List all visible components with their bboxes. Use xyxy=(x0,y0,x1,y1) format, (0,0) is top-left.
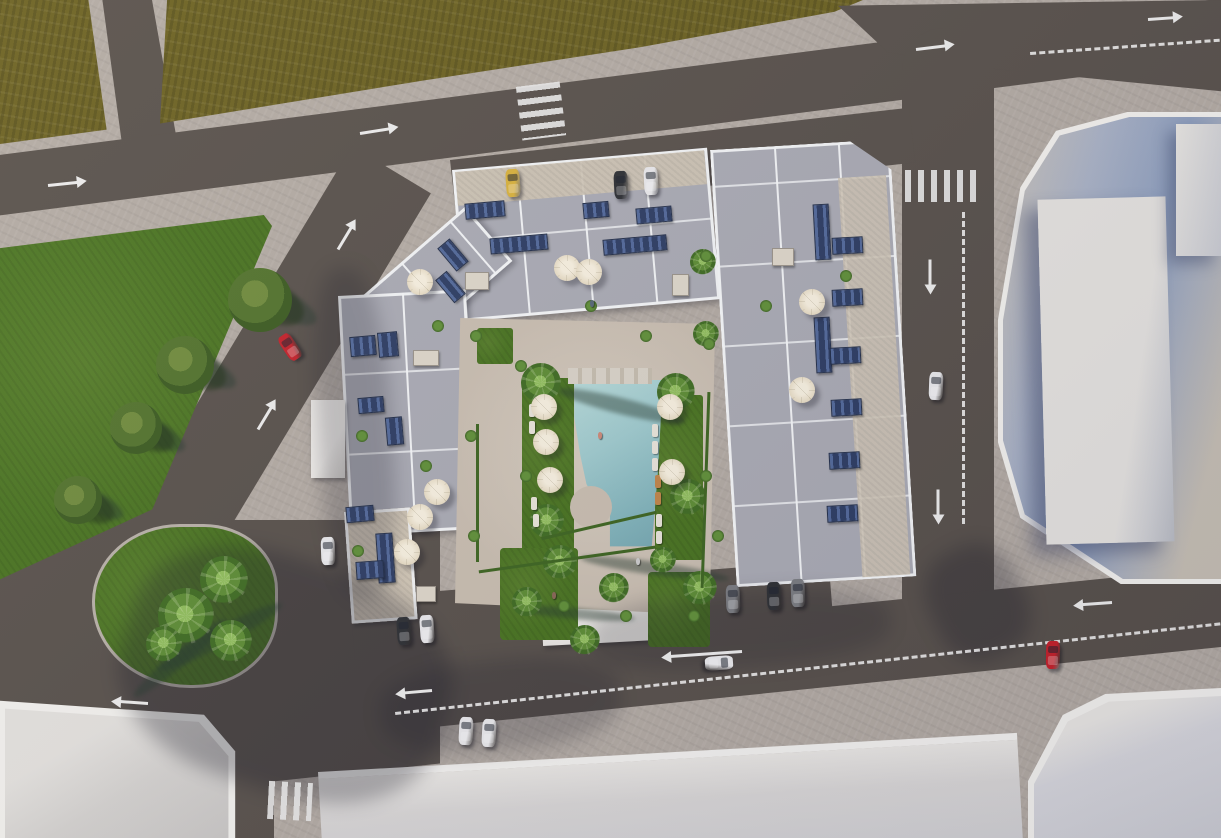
pool-lounger xyxy=(655,492,661,505)
solar-panel-array xyxy=(635,205,672,224)
car-windshield xyxy=(484,724,494,732)
shrub-planter xyxy=(465,430,477,442)
pool-lounger xyxy=(652,441,658,454)
person-figure xyxy=(552,592,556,599)
crosswalk-zebra xyxy=(516,82,566,141)
terrace-table xyxy=(672,274,689,296)
road-direction-arrow xyxy=(916,44,946,51)
car-dark xyxy=(767,582,782,610)
car-white xyxy=(481,719,496,748)
person-figure xyxy=(636,558,640,565)
car-white xyxy=(458,717,473,746)
car-roof-highlight xyxy=(728,600,738,609)
shrub-planter xyxy=(620,610,632,622)
shrub-planter xyxy=(432,320,444,332)
car-roof-highlight xyxy=(323,552,333,561)
pool-lounger xyxy=(529,421,535,434)
shrub-planter xyxy=(703,338,715,350)
solar-panel-array xyxy=(582,201,609,219)
solar-panel-array xyxy=(813,204,832,261)
solar-panel-array xyxy=(827,504,859,523)
road-direction-arrow xyxy=(1082,601,1112,606)
shrub-planter xyxy=(700,250,712,262)
car-white xyxy=(705,655,734,671)
road-direction-arrow xyxy=(360,127,390,135)
park-tree xyxy=(110,402,162,454)
shrub-planter xyxy=(640,330,652,342)
parasol-umbrella xyxy=(533,429,559,455)
parasol-umbrella xyxy=(407,269,433,295)
parasol-umbrella xyxy=(394,539,420,565)
solar-panel-array xyxy=(489,234,548,255)
pool-lounger xyxy=(656,531,662,544)
car-windshield xyxy=(931,377,941,384)
road-direction-arrow xyxy=(337,226,353,250)
car-windshield xyxy=(769,587,779,594)
shrub-planter xyxy=(420,460,432,472)
car-windshield xyxy=(323,542,333,549)
car-roof-highlight xyxy=(646,182,656,192)
shrub-planter xyxy=(352,545,364,557)
pool-lounger xyxy=(652,424,658,437)
shrub-planter xyxy=(520,470,532,482)
park-tree xyxy=(228,268,292,332)
solar-panel-array xyxy=(832,236,864,255)
terrace-table xyxy=(772,248,794,266)
terrace-table xyxy=(416,586,436,602)
courtyard-palm-tree xyxy=(650,547,676,573)
pool-lounger xyxy=(531,497,537,510)
car-roof-highlight xyxy=(483,734,493,744)
person-figure xyxy=(590,300,594,307)
shrub-planter xyxy=(558,600,570,612)
road-direction-arrow xyxy=(929,260,932,286)
courtyard-palm-tree xyxy=(512,587,542,617)
car-roof-highlight xyxy=(422,630,433,640)
shrub-planter xyxy=(700,470,712,482)
solar-panel-array xyxy=(435,271,466,304)
car-windshield xyxy=(616,176,626,184)
solar-panel-array xyxy=(437,238,469,271)
shrub-planter xyxy=(470,330,482,342)
car-windshield xyxy=(398,622,408,630)
solar-panel-array xyxy=(349,335,377,357)
shrub-planter xyxy=(515,360,527,372)
car-windshield xyxy=(461,722,471,730)
lane-dashed-line xyxy=(962,212,965,524)
shrub-planter xyxy=(760,300,772,312)
car-white xyxy=(321,537,336,565)
scene-objects xyxy=(0,0,1221,838)
island-palm-tree xyxy=(210,620,252,662)
car-windshield xyxy=(721,657,729,667)
page: { "meta": { "description": "Aerial 3D ar… xyxy=(0,0,1221,838)
shrub-planter xyxy=(468,530,480,542)
island-palm-tree xyxy=(146,626,182,662)
courtyard-palm-tree xyxy=(599,573,629,603)
solar-panel-array xyxy=(814,317,833,374)
lane-dashed-line xyxy=(1030,39,1220,55)
shrub-planter xyxy=(356,430,368,442)
car-windshield xyxy=(421,620,431,628)
solar-panel-array xyxy=(831,398,863,417)
parasol-umbrella xyxy=(657,394,683,420)
pool-lounger xyxy=(656,514,662,527)
crosswalk-zebra xyxy=(267,781,313,821)
car-windshield xyxy=(1048,646,1058,653)
car-roof-highlight xyxy=(769,597,779,606)
car-gray xyxy=(726,585,741,613)
road-direction-arrow xyxy=(1148,16,1174,21)
parasol-umbrella xyxy=(537,467,563,493)
car-white xyxy=(929,372,944,400)
park-tree xyxy=(156,336,214,394)
car-roof-highlight xyxy=(399,632,410,642)
car-white xyxy=(643,167,658,196)
car-yellow xyxy=(505,169,521,198)
solar-panel-array xyxy=(377,331,399,358)
car-roof-highlight xyxy=(286,345,299,358)
parasol-umbrella xyxy=(531,394,557,420)
car-roof-highlight xyxy=(1048,656,1058,665)
car-roof-highlight xyxy=(931,387,941,396)
car-windshield xyxy=(507,174,517,182)
terrace-table xyxy=(413,350,439,366)
parasol-umbrella xyxy=(424,479,450,505)
solar-panel-array xyxy=(829,451,861,470)
shrub-planter xyxy=(840,270,852,282)
solar-panel-array xyxy=(355,560,384,580)
car-dark xyxy=(396,617,412,646)
park-tree xyxy=(54,476,102,524)
island-palm-tree xyxy=(200,556,248,604)
solar-panel-array xyxy=(345,505,374,523)
shrub-planter xyxy=(688,610,700,622)
car-red xyxy=(1046,641,1060,669)
car-roof-highlight xyxy=(709,658,719,669)
parasol-umbrella xyxy=(799,289,825,315)
parasol-umbrella xyxy=(659,459,685,485)
car-windshield xyxy=(793,584,803,591)
car-roof-highlight xyxy=(508,184,519,194)
crosswalk-zebra xyxy=(905,170,983,202)
parasol-umbrella xyxy=(789,377,815,403)
car-windshield xyxy=(646,172,656,180)
car-roof-highlight xyxy=(616,186,626,196)
car-white xyxy=(419,615,435,644)
solar-panel-array xyxy=(830,346,862,365)
parasol-umbrella xyxy=(407,504,433,530)
parasol-umbrella xyxy=(576,259,602,285)
pool-lounger xyxy=(533,514,539,527)
car-dark xyxy=(613,171,628,200)
car-roof-highlight xyxy=(793,594,803,603)
road-direction-arrow xyxy=(937,490,940,516)
terrace-table xyxy=(465,272,489,290)
car-gray xyxy=(791,579,806,607)
solar-panel-array xyxy=(602,234,667,256)
courtyard-palm-tree xyxy=(570,625,600,655)
car-red xyxy=(276,331,303,362)
person-figure xyxy=(598,432,602,439)
shrub-planter xyxy=(712,530,724,542)
car-windshield xyxy=(728,590,738,597)
car-roof-highlight xyxy=(460,732,470,742)
pool-lounger xyxy=(652,458,658,471)
road-direction-arrow xyxy=(48,181,78,187)
solar-panel-array xyxy=(357,396,384,414)
solar-panel-array xyxy=(832,288,864,307)
solar-panel-array xyxy=(385,416,404,445)
road-direction-arrow xyxy=(257,406,273,430)
aerial-render xyxy=(0,0,1221,838)
solar-panel-array xyxy=(464,200,505,219)
